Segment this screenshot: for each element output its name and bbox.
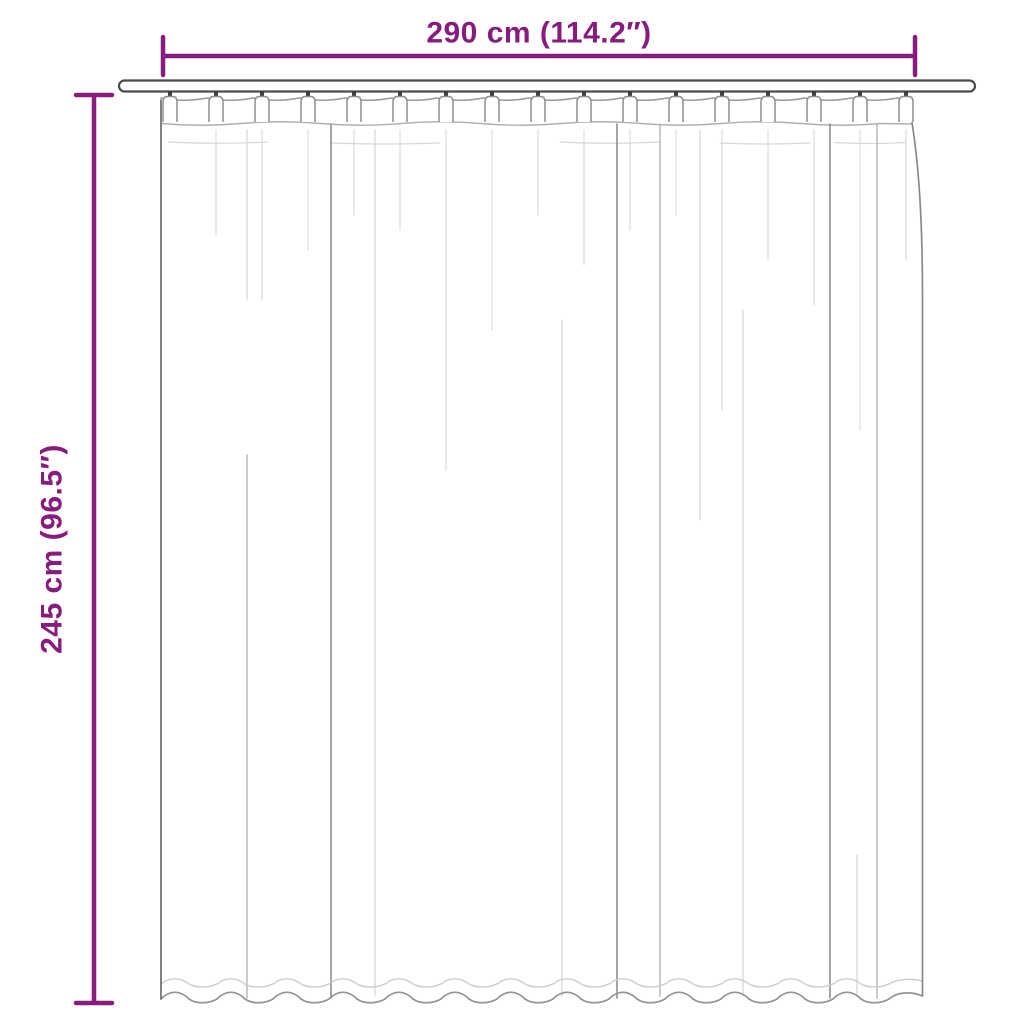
pleat-tab: [807, 91, 821, 122]
pleat-tab: [899, 91, 913, 122]
pleat-tab: [439, 91, 453, 122]
pleat-tab: [853, 91, 867, 122]
width-dimension-label: 290 cm (114.2″): [426, 17, 651, 50]
diagram-canvas: 290 cm (114.2″) 245 cm (96.5″): [0, 0, 1024, 1024]
height-dimension: 245 cm (96.5″): [36, 95, 113, 1003]
pleat-tab: [255, 91, 269, 122]
curtain-rod: [119, 81, 975, 92]
pleat-tab: [761, 91, 775, 122]
pleat-header: [163, 91, 913, 122]
height-dimension-label: 245 cm (96.5″): [36, 444, 69, 654]
pleat-tab: [623, 91, 637, 122]
curtain-illustration: [119, 81, 975, 1003]
height-dimension-line: [76, 95, 112, 1003]
curtain-hem: [161, 979, 923, 1003]
curtain-right-edge: [908, 100, 923, 996]
pleat-tab: [347, 91, 361, 122]
pleat-tab: [577, 91, 591, 122]
hem-seam-line: [161, 979, 923, 987]
pleat-tab: [669, 91, 683, 122]
width-dimension: 290 cm (114.2″): [163, 17, 915, 76]
pleat-tab: [531, 91, 545, 122]
product-dimension-diagram: 290 cm (114.2″) 245 cm (96.5″): [0, 0, 1024, 1024]
hem-bottom-edge: [161, 992, 923, 1003]
pleat-tab: [715, 91, 729, 122]
pleat-tab: [163, 91, 177, 122]
pleat-drop-crease: [216, 130, 906, 470]
pleat-tab: [209, 91, 223, 122]
pleat-tab: [485, 91, 499, 122]
pleat-tab: [393, 91, 407, 122]
header-stitch-line: [168, 142, 905, 144]
pleat-tab: [301, 91, 315, 122]
fold-line-light: [247, 130, 857, 996]
header-seam-line: [161, 122, 911, 126]
fold-line-dark: [331, 124, 830, 998]
